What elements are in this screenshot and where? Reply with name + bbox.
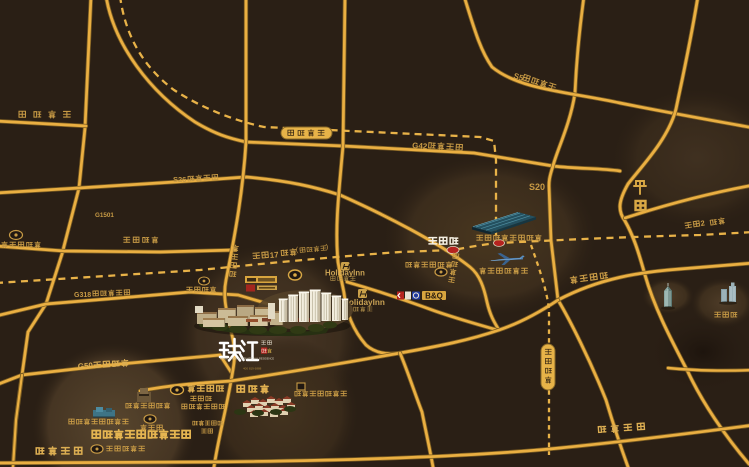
- svg-text:17: 17: [269, 250, 279, 260]
- svg-text:400 819 6888: 400 819 6888: [243, 367, 262, 371]
- svg-text:G42: G42: [412, 141, 428, 151]
- svg-text:S26: S26: [173, 175, 186, 184]
- svg-text:PEARL RIVER INTERNATIONAL RESI: PEARL RIVER INTERNATIONAL RESIDENCE: [220, 357, 274, 361]
- svg-text:G318: G318: [74, 292, 91, 299]
- svg-text:G1501: G1501: [95, 212, 114, 219]
- svg-text:): ): [326, 244, 329, 251]
- svg-text:S20: S20: [529, 182, 545, 192]
- svg-text:G50: G50: [78, 361, 94, 371]
- svg-text:B&Q: B&Q: [425, 292, 443, 301]
